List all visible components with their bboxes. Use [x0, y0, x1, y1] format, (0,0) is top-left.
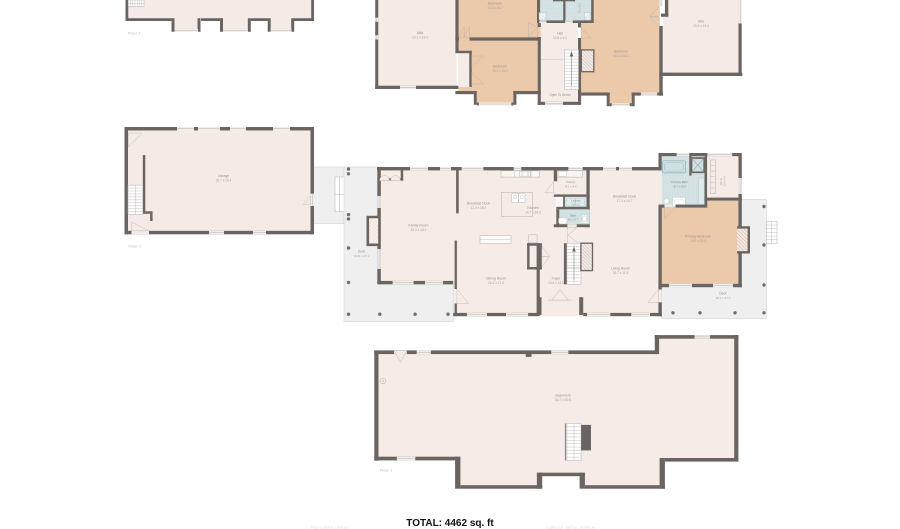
svg-text:10.7 x 10.8: 10.7 x 10.8 — [673, 184, 686, 188]
svg-text:19.3 x 19.4: 19.3 x 19.4 — [693, 24, 709, 28]
svg-text:23.1 x 13.4: 23.1 x 13.4 — [412, 35, 428, 39]
svg-text:4.8 x 6.7: 4.8 x 6.7 — [571, 204, 581, 207]
svg-text:10.8 x 4.9: 10.8 x 4.9 — [553, 36, 567, 40]
svg-text:19.3 x 15.7: 19.3 x 15.7 — [487, 6, 503, 10]
svg-text:8.1 x 5.7: 8.1 x 5.7 — [568, 218, 579, 222]
svg-text:15.1 x 16.2: 15.1 x 16.2 — [492, 69, 508, 73]
svg-text:Primary Bath: Primary Bath — [671, 180, 688, 184]
svg-text:20.9 x 27.1: 20.9 x 27.1 — [354, 254, 369, 258]
svg-text:Floor 2: Floor 2 — [129, 244, 142, 249]
svg-text:8.1 x 4.4: 8.1 x 4.4 — [565, 184, 576, 188]
svg-text:15.1 x 15.1: 15.1 x 15.1 — [613, 54, 629, 58]
svg-text:35.7 x 19.4: 35.7 x 19.4 — [216, 178, 232, 182]
svg-text:17.3 x 14.7: 17.3 x 14.7 — [617, 199, 633, 203]
svg-text:19.5 x 15.4: 19.5 x 15.4 — [690, 239, 706, 243]
svg-text:Floor 1: Floor 1 — [380, 468, 393, 473]
svg-text:11.4 x 18.3: 11.4 x 18.3 — [471, 206, 487, 210]
svg-text:36.1 x 27.7: 36.1 x 27.7 — [716, 296, 731, 300]
svg-text:TOTAL: 4462 sq. ft: TOTAL: 4462 sq. ft — [406, 518, 494, 529]
svg-text:W.I.C.: W.I.C. — [719, 177, 723, 185]
svg-text:64.7 x 30.6: 64.7 x 30.6 — [555, 398, 571, 402]
svg-text:Open To Below: Open To Below — [549, 93, 571, 97]
svg-text:10.9 x 13.6: 10.9 x 13.6 — [548, 281, 564, 285]
svg-text:9.1 x 6.3: 9.1 x 6.3 — [579, 3, 582, 13]
svg-text:16.7 x 16.2: 16.7 x 16.2 — [525, 210, 541, 214]
svg-text:Laundry: Laundry — [571, 198, 581, 202]
svg-text:20.1 x 17.4: 20.1 x 17.4 — [488, 281, 504, 285]
svg-text:GARAGE, DECK, PORCH: GARAGE, DECK, PORCH — [545, 526, 594, 529]
svg-text:EXCLUDED AREAS: EXCLUDED AREAS — [311, 526, 349, 529]
svg-text:Bath: Bath — [570, 213, 576, 217]
svg-text:16.7 x 11.9: 16.7 x 11.9 — [613, 271, 629, 275]
svg-text:19.3 x 18.2: 19.3 x 18.2 — [411, 228, 427, 232]
svg-text:9.4 x 5.5: 9.4 x 5.5 — [723, 175, 727, 186]
svg-text:Floor 3: Floor 3 — [128, 31, 141, 36]
